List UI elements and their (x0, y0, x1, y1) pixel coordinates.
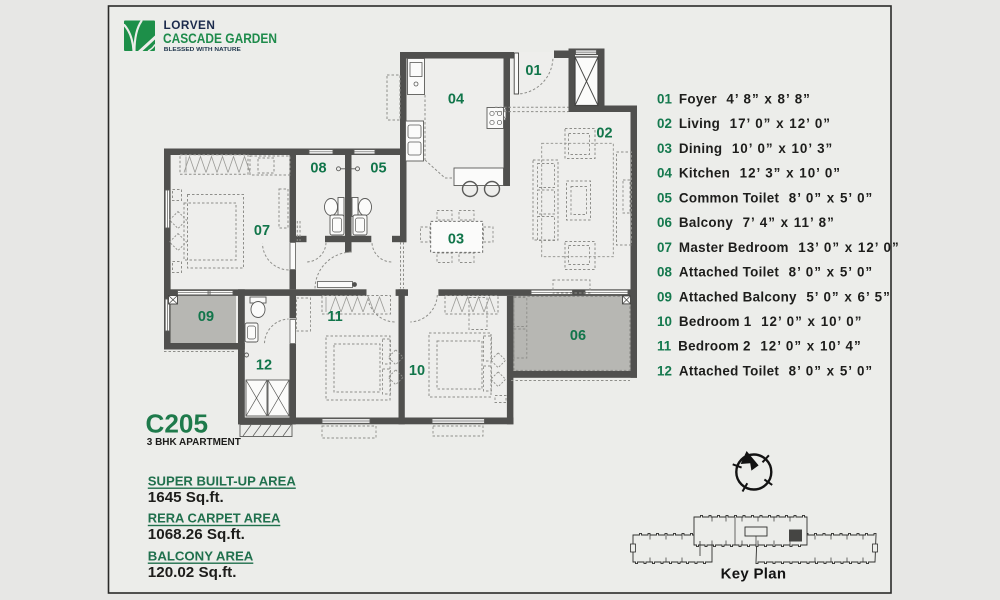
svg-text:02Living17’ 0” x 12’ 0”: 02Living17’ 0” x 12’ 0” (657, 116, 831, 131)
svg-text:05: 05 (370, 161, 386, 177)
svg-text:06Balcony7’ 4” x 11’ 8”: 06Balcony7’ 4” x 11’ 8” (657, 215, 835, 230)
svg-text:08Attached Toilet8’ 0” x 5’ 0”: 08Attached Toilet8’ 0” x 5’ 0” (657, 265, 873, 280)
svg-text:RERA CARPET AREA: RERA CARPET AREA (148, 511, 281, 526)
svg-text:09Attached Balcony5’ 0” x 6’ 5: 09Attached Balcony5’ 0” x 6’ 5” (657, 289, 891, 304)
svg-text:12Attached Toilet8’ 0” x 5’ 0”: 12Attached Toilet8’ 0” x 5’ 0” (657, 363, 873, 378)
svg-text:3 BHK APARTMENT: 3 BHK APARTMENT (147, 437, 242, 448)
svg-text:11Bedroom 212’ 0” x 10’ 4”: 11Bedroom 212’ 0” x 10’ 4” (657, 339, 862, 354)
svg-text:12: 12 (256, 358, 272, 374)
svg-text:01Foyer4’ 8” x 8’ 8”: 01Foyer4’ 8” x 8’ 8” (657, 92, 811, 107)
svg-text:BALCONY AREA: BALCONY AREA (148, 548, 254, 563)
svg-text:08: 08 (310, 161, 326, 177)
svg-text:04Kitchen12’ 3” x 10’ 0”: 04Kitchen12’ 3” x 10’ 0” (657, 166, 841, 181)
svg-text:09: 09 (198, 309, 214, 325)
svg-text:02: 02 (596, 126, 612, 142)
svg-text:03Dining10’ 0” x 10’ 3”: 03Dining10’ 0” x 10’ 3” (657, 141, 833, 156)
svg-text:Key Plan: Key Plan (721, 566, 787, 583)
svg-text:CASCADE GARDEN: CASCADE GARDEN (163, 31, 277, 46)
svg-text:LORVEN: LORVEN (164, 18, 216, 32)
svg-text:04: 04 (448, 92, 464, 108)
svg-text:05Common Toilet8’ 0” x 5’ 0”: 05Common Toilet8’ 0” x 5’ 0” (657, 190, 873, 205)
svg-text:C205: C205 (146, 411, 209, 439)
svg-text:SUPER BUILT-UP AREA: SUPER BUILT-UP AREA (148, 473, 296, 488)
svg-text:10: 10 (409, 363, 425, 379)
svg-text:07Master Bedroom13’ 0” x 12’ 0: 07Master Bedroom13’ 0” x 12’ 0” (657, 240, 900, 255)
svg-text:1068.26 Sq.ft.: 1068.26 Sq.ft. (148, 526, 245, 543)
svg-text:07: 07 (254, 223, 270, 239)
svg-text:BLESSED WITH NATURE: BLESSED WITH NATURE (164, 47, 241, 53)
svg-text:1645 Sq.ft.: 1645 Sq.ft. (148, 489, 224, 506)
svg-text:11: 11 (327, 309, 342, 325)
svg-text:120.02 Sq.ft.: 120.02 Sq.ft. (148, 564, 237, 581)
svg-text:06: 06 (570, 328, 586, 344)
svg-text:01: 01 (525, 63, 541, 79)
svg-text:03: 03 (448, 232, 464, 248)
